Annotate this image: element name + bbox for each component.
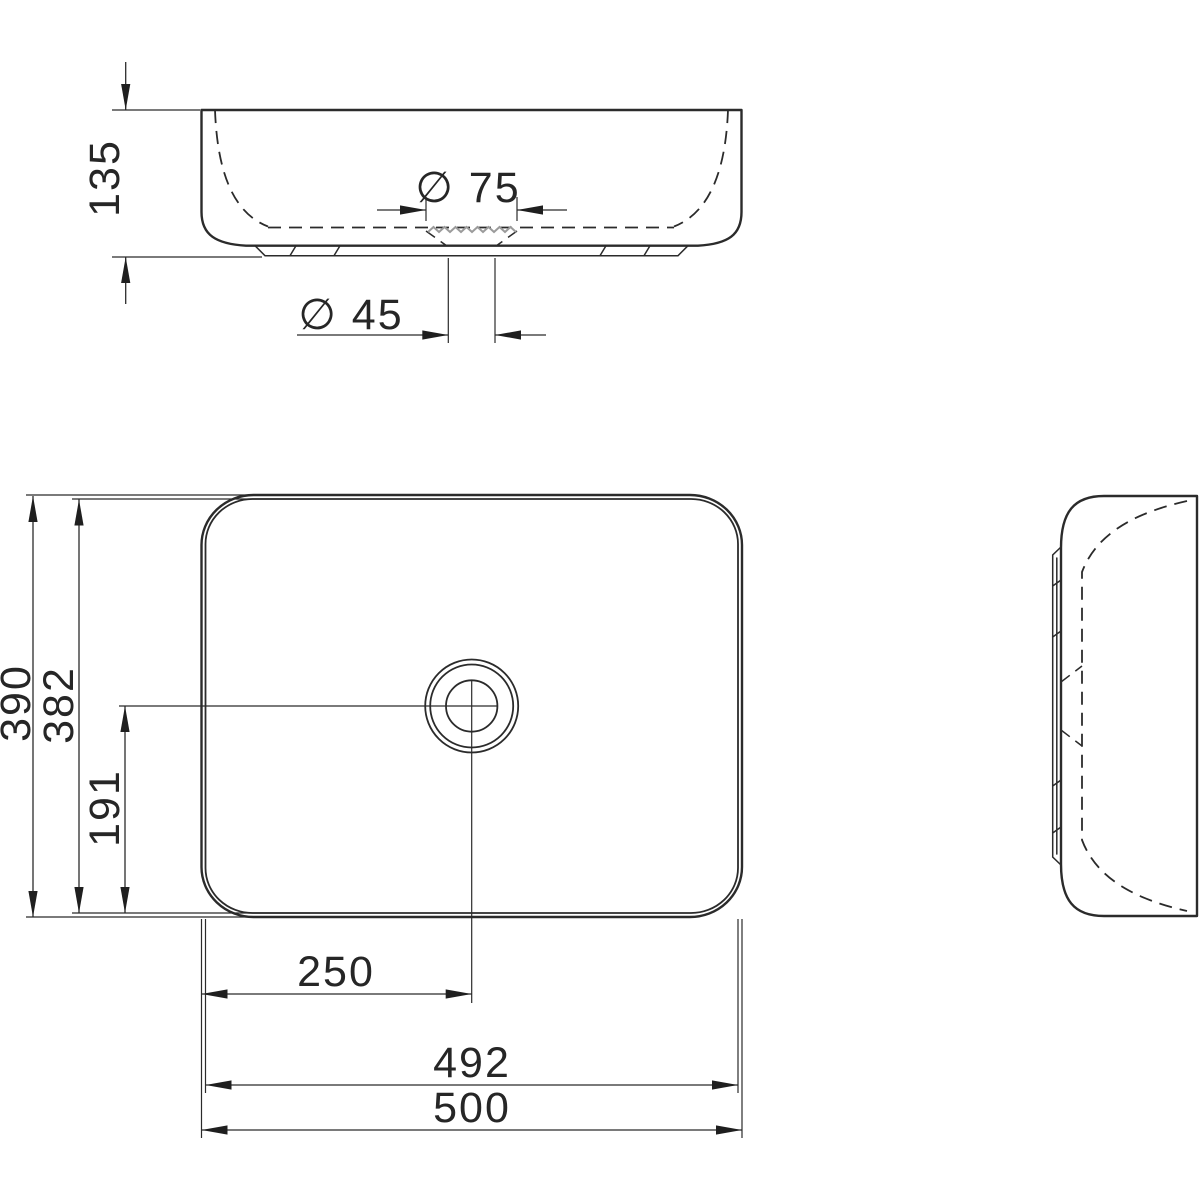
dim-label-diameter-45: ∅ 45	[298, 291, 403, 339]
dim-label-382: 382	[35, 666, 83, 744]
arrowhead	[712, 1080, 738, 1089]
arrowhead	[202, 1125, 228, 1134]
arrowhead	[716, 1125, 742, 1134]
arrowhead	[422, 330, 448, 339]
arrowhead	[28, 891, 37, 917]
base-tick	[644, 246, 650, 256]
dim-label-390: 390	[0, 664, 40, 742]
dim-label-135: 135	[81, 139, 129, 217]
base-tick	[290, 246, 296, 256]
side-elevation-view	[1053, 496, 1197, 916]
dim-recess-diameter-75: ∅ 75	[377, 164, 567, 221]
arrowhead	[495, 330, 521, 339]
arrowhead	[206, 1080, 232, 1089]
arrowhead	[120, 706, 129, 732]
side-drain-recess-top-hidden	[1061, 666, 1082, 682]
dim-label-500: 500	[433, 1084, 511, 1132]
plan-view: 390 382 191 250	[0, 495, 742, 1138]
inner-bowl-left-wall-hidden	[215, 110, 268, 227]
front-elevation-view: 135 ∅ 75 ∅ 45	[81, 62, 742, 343]
dim-inner-width-492: 492	[206, 1039, 739, 1090]
arrowhead	[517, 205, 543, 214]
dim-drain-offset-250: 250	[202, 948, 472, 999]
side-drain-recess-bottom-hidden	[1061, 730, 1082, 746]
base-tick	[334, 246, 340, 256]
dim-label-191: 191	[81, 769, 129, 847]
side-outer-profile	[1061, 496, 1197, 916]
dim-overall-width-500: 500	[202, 1084, 743, 1135]
arrowhead	[121, 257, 130, 283]
dim-drain-offset-191: 191	[81, 706, 130, 913]
drawing-sheet: 135 ∅ 75 ∅ 45	[0, 0, 1200, 1200]
arrowhead	[121, 84, 130, 110]
side-inner-bowl-hidden	[1082, 501, 1187, 911]
dim-label-492: 492	[433, 1039, 511, 1087]
dim-label-250: 250	[297, 948, 375, 996]
arrowhead	[28, 496, 37, 522]
arrowhead	[446, 989, 472, 998]
arrowhead	[74, 887, 83, 913]
drain-recess-left-hidden	[426, 231, 447, 246]
arrowhead	[120, 887, 129, 913]
dim-height-135: 135	[81, 62, 262, 304]
dim-drain-diameter-45: ∅ 45	[297, 291, 546, 340]
basin-base-band	[255, 246, 688, 256]
inner-bowl-right-wall-hidden	[674, 110, 728, 227]
technical-drawing-canvas: 135 ∅ 75 ∅ 45	[0, 0, 1200, 1200]
dim-label-diameter-75: ∅ 75	[415, 164, 520, 212]
drain-recess-right-hidden	[496, 231, 517, 246]
base-tick	[600, 246, 606, 256]
arrowhead	[74, 500, 83, 526]
